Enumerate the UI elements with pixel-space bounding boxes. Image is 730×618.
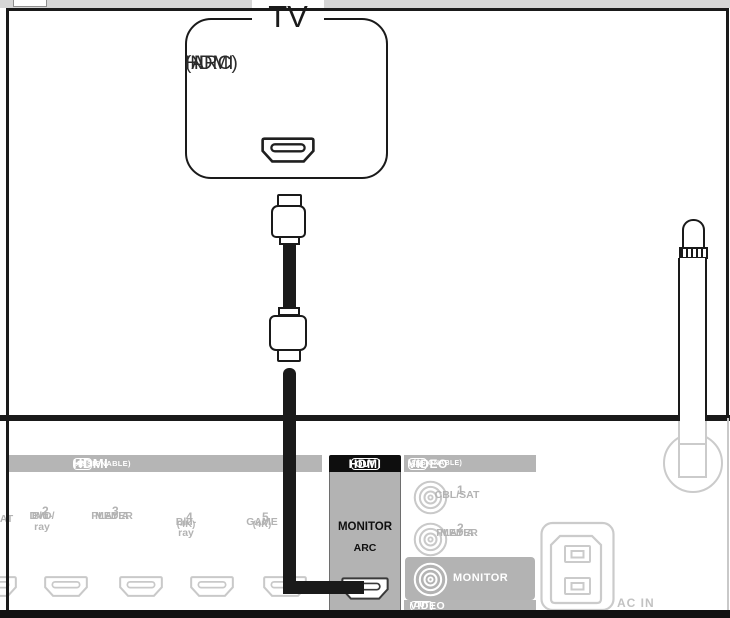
hdmi-port-icon — [256, 136, 320, 164]
frame-border-right — [726, 8, 729, 418]
antenna-cap — [682, 219, 705, 249]
tv-port-caption-line: (ARC) — [185, 51, 238, 77]
hdmi-cable-plug-bottom-body — [269, 315, 307, 351]
hdmi-port-icon — [118, 575, 164, 598]
frame-border-top — [6, 8, 729, 11]
connection-diagram: TV HDMI IN (ARC) HDMI IN (ASSIGNABLE) SA… — [0, 0, 730, 618]
panel-divider-line — [0, 415, 730, 421]
hdmi-port-icon — [43, 575, 89, 598]
out-badge: OUT — [351, 458, 380, 470]
ac-inlet-icon — [537, 520, 617, 614]
frame-border-right-lower — [727, 418, 729, 610]
chassis-bottom-edge — [0, 610, 730, 618]
top-strip-partial-box — [13, 0, 47, 7]
hdmi-cable-plug-top-body — [271, 205, 306, 238]
arc-port-label: ARC — [329, 542, 401, 554]
assignable-note: (ASSIGNABLE) — [408, 460, 462, 467]
tv-title: TV — [252, 0, 324, 34]
frame-border-left — [6, 8, 9, 618]
video-in-section-bar: VIDEO IN (ASSIGNABLE) — [404, 455, 536, 472]
antenna-rod-lower — [678, 418, 707, 478]
monitor-port-label: MONITOR — [329, 521, 401, 533]
hdmi-cable-run-vertical — [283, 368, 296, 594]
top-strip — [0, 0, 730, 8]
hdmi-in-section-bar: HDMI IN (ASSIGNABLE) — [9, 455, 322, 472]
rca-jack-icon — [412, 561, 449, 598]
hdmi-port-icon — [189, 575, 235, 598]
video-monitor-label: MONITOR — [453, 572, 508, 584]
ac-in-label: AC IN — [617, 596, 655, 610]
antenna-rod — [678, 258, 707, 421]
hdmi-cable — [283, 244, 296, 309]
antenna-rod-joint — [680, 443, 705, 445]
hdmi-cable-plug-bottom — [277, 349, 301, 362]
hdmi-cable-run-horizontal — [283, 581, 364, 594]
hdmi-port-icon — [0, 575, 18, 598]
hdmi-out-section-bar: HDMI OUT — [329, 455, 401, 472]
assignable-note: (ASSIGNABLE) — [73, 459, 131, 468]
